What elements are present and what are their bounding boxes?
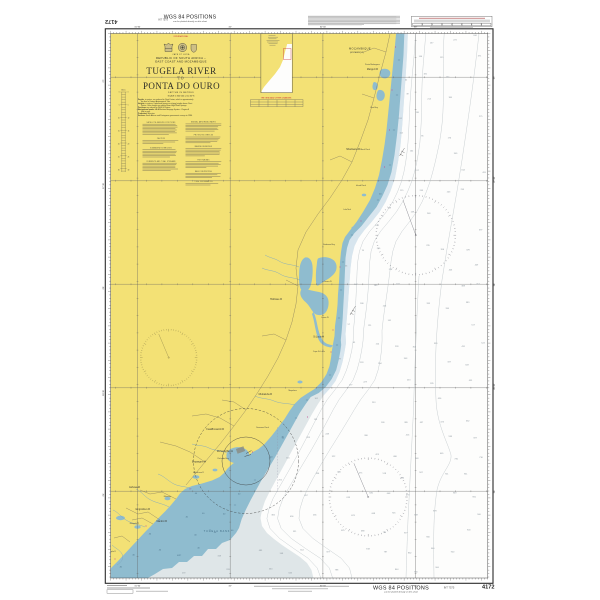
- svg-text:29°: 29°: [103, 493, 105, 496]
- svg-text:Richards Bay: Richards Bay: [217, 450, 232, 453]
- svg-text:5: 5: [119, 105, 120, 107]
- svg-text:28°: 28°: [494, 283, 496, 286]
- svg-text:Black Rock: Black Rock: [360, 149, 370, 151]
- svg-text:30: 30: [128, 170, 130, 172]
- svg-text:32°: 32°: [229, 586, 232, 588]
- svg-text:SCALE 1:300 000 at lat 30°S: SCALE 1:300 000 at lat 30°S: [168, 94, 195, 97]
- svg-text:Sodwana Bay: Sodwana Bay: [323, 244, 335, 246]
- svg-text:0: 0: [119, 92, 120, 94]
- svg-text:10: 10: [118, 118, 120, 120]
- svg-text:0: 0: [128, 92, 129, 94]
- svg-text:Mtubatuba: Mtubatuba: [259, 393, 271, 396]
- svg-text:Mbazwana: Mbazwana: [346, 149, 358, 151]
- svg-text:32°30': 32°30': [320, 27, 327, 29]
- svg-text:Cape St Lucia: Cape St Lucia: [313, 350, 326, 353]
- svg-text:Ponta Malongane: Ponta Malongane: [365, 63, 380, 66]
- svg-text:Gingindlovu: Gingindlovu: [135, 509, 148, 511]
- svg-text:Island Rock: Island Rock: [356, 185, 366, 187]
- svg-text:29°: 29°: [494, 490, 496, 493]
- svg-text:WGS 84 POSITIONS: WGS 84 POSITIONS: [164, 14, 217, 20]
- svg-text:33°: 33°: [414, 27, 417, 29]
- svg-text:25: 25: [128, 157, 130, 159]
- svg-text:Sources: South African and Por: Sources: South African and Portuguese go…: [138, 114, 193, 117]
- svg-text:Mandini: Mandini: [156, 521, 165, 523]
- svg-text:32°: 32°: [229, 27, 232, 29]
- svg-text:PROTECTED WRECKS: PROTECTED WRECKS: [194, 135, 213, 137]
- svg-text:28°30': 28°30': [103, 389, 105, 396]
- svg-text:DEPTHS IN METRES: DEPTHS IN METRES: [168, 92, 194, 94]
- svg-text:can be plotted directly on thi: can be plotted directly on this chart: [173, 20, 207, 23]
- svg-text:5: 5: [128, 105, 129, 107]
- svg-text:INT 7575: INT 7575: [444, 586, 455, 590]
- svg-text:Lala Nek: Lala Nek: [343, 209, 351, 211]
- svg-text:30: 30: [118, 170, 120, 172]
- svg-text:25: 25: [118, 157, 120, 159]
- svg-text:WGS 84 POSITIONS: WGS 84 POSITIONS: [373, 585, 429, 591]
- svg-text:Leven Pt: Leven Pt: [321, 316, 329, 319]
- svg-text:10: 10: [128, 118, 130, 120]
- svg-text:33°: 33°: [414, 586, 417, 588]
- svg-text:Mapelane: Mapelane: [288, 390, 296, 392]
- svg-text:20: 20: [128, 144, 130, 146]
- svg-text:Mhlathuze R: Mhlathuze R: [193, 471, 204, 474]
- svg-text:32°30': 32°30': [320, 586, 327, 588]
- svg-text:Manguzi: Manguzi: [367, 69, 376, 71]
- svg-text:Eshowe: Eshowe: [129, 487, 138, 489]
- svg-text:St Lucia: St Lucia: [313, 335, 322, 338]
- svg-text:20: 20: [118, 144, 120, 146]
- svg-text:4172: 4172: [482, 585, 494, 591]
- svg-text:Empangeni: Empangeni: [192, 461, 204, 463]
- svg-text:Jesser Pt: Jesser Pt: [324, 280, 332, 283]
- svg-text:4172: 4172: [105, 18, 117, 24]
- svg-text:Richards Bay: Richards Bay: [218, 457, 229, 460]
- svg-text:Mtunzini: Mtunzini: [164, 495, 172, 498]
- svg-text:Kosi Bay: Kosi Bay: [370, 107, 378, 109]
- svg-text:(MOZAMBIQUE): (MOZAMBIQUE): [350, 51, 365, 54]
- svg-text:15: 15: [128, 131, 130, 133]
- svg-text:Dawsons Rock: Dawsons Rock: [256, 427, 269, 429]
- svg-text:PONTA DO OURO: PONTA DO OURO: [143, 81, 220, 91]
- svg-text:TUGELA RIVER: TUGELA RIVER: [146, 66, 216, 76]
- svg-text:27°: 27°: [494, 76, 496, 79]
- svg-text:THE GRID AND OTHER CHANGES: THE GRID AND OTHER CHANGES: [261, 96, 292, 99]
- svg-text:Matigulu R: Matigulu R: [130, 522, 140, 525]
- svg-text:15: 15: [118, 131, 120, 133]
- svg-text:INTERNATIONAL: INTERNATIONAL: [174, 35, 189, 38]
- svg-text:TUGELA BANK: TUGELA BANK: [204, 530, 231, 533]
- svg-text:27°30': 27°30': [494, 176, 496, 183]
- svg-text:Hluhluwe: Hluhluwe: [270, 299, 280, 301]
- svg-text:KwaMbonambi: KwaMbonambi: [206, 429, 222, 431]
- svg-text:27°30': 27°30': [103, 182, 105, 189]
- svg-text:EAST COAST AND MOZAMBIQUE: EAST COAST AND MOZAMBIQUE: [155, 59, 207, 63]
- svg-text:27°: 27°: [103, 79, 105, 82]
- svg-text:TO: TO: [178, 77, 184, 81]
- svg-text:31°30': 31°30': [134, 27, 141, 29]
- svg-text:28°: 28°: [103, 286, 105, 289]
- svg-text:28°30': 28°30': [494, 383, 496, 390]
- svg-text:31°30': 31°30': [134, 586, 141, 588]
- svg-text:MOÇAMBIQUE: MOÇAMBIQUE: [349, 47, 371, 51]
- svg-text:can be plotted directly on thi: can be plotted directly on this chart: [384, 591, 418, 594]
